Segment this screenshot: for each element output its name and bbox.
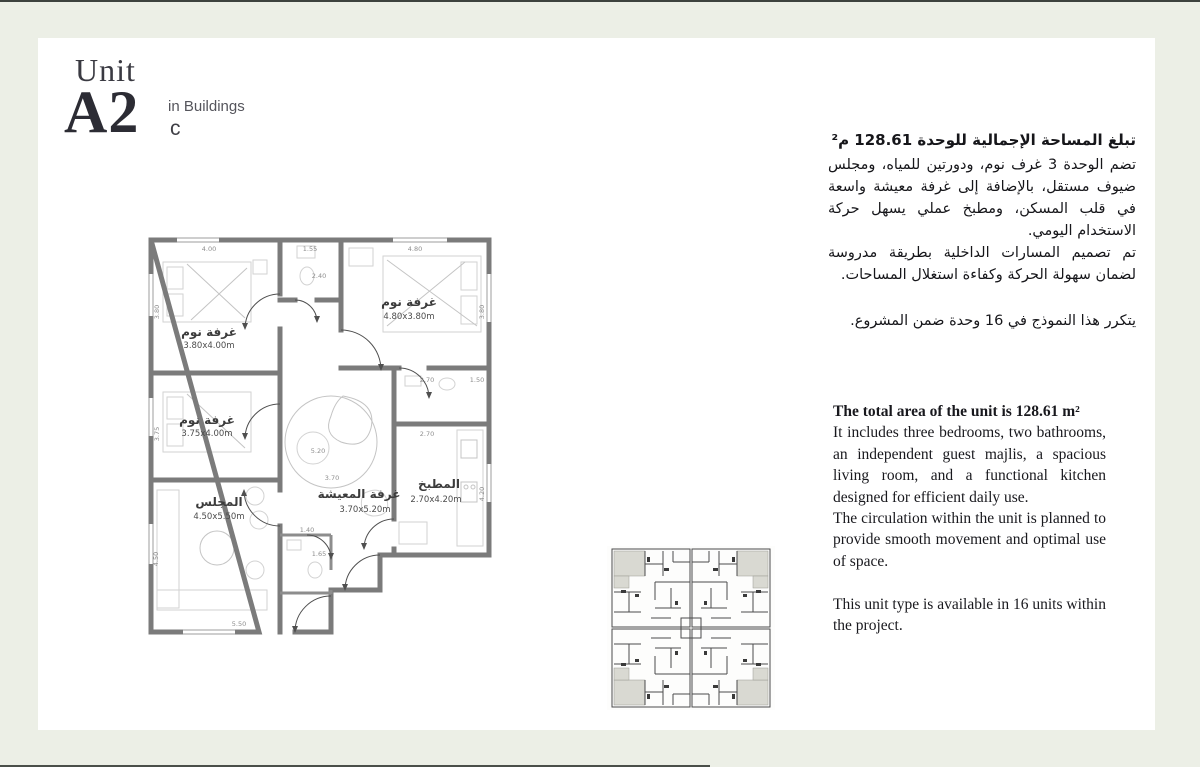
arabic-heading: تبلغ المساحة الإجمالية للوحدة 128.61 م² xyxy=(828,129,1136,152)
svg-text:3.80: 3.80 xyxy=(478,305,486,319)
room-label-bedroom3: غرفة نوم xyxy=(179,413,235,428)
english-paragraph-3: This unit type is available in 16 units … xyxy=(833,594,1106,637)
svg-text:2.70: 2.70 xyxy=(420,376,434,384)
svg-text:4.50x5.50m: 4.50x5.50m xyxy=(193,512,244,522)
svg-text:3.75x4.00m: 3.75x4.00m xyxy=(181,429,232,439)
svg-text:1.40: 1.40 xyxy=(300,526,314,534)
svg-text:2.40: 2.40 xyxy=(312,272,326,280)
in-buildings-label: in Buildings xyxy=(168,98,245,115)
room-label-living: غرفة المعيشة xyxy=(318,487,401,501)
svg-text:3.80: 3.80 xyxy=(153,305,161,319)
building-letter: c xyxy=(170,117,181,141)
svg-text:5.50: 5.50 xyxy=(232,620,246,628)
arabic-paragraph-3: يتكرر هذا النموذج في 16 وحدة ضمن المشروع… xyxy=(828,310,1136,332)
svg-text:2.70: 2.70 xyxy=(420,430,434,438)
room-label-majlis: المجلس xyxy=(195,495,242,509)
arabic-paragraph-2: تم تصميم المسارات الداخلية بطريقة مدروسة… xyxy=(828,242,1136,286)
building-key-plan xyxy=(607,546,775,710)
room-label-kitchen: المطبخ xyxy=(418,477,460,491)
svg-text:1.55: 1.55 xyxy=(303,245,317,253)
english-description: The total area of the unit is 128.61 m² … xyxy=(833,401,1106,637)
arabic-paragraph-1: تضم الوحدة 3 غرف نوم، ودورتين للمياه، وم… xyxy=(828,154,1136,242)
english-heading: The total area of the unit is 128.61 m² xyxy=(833,401,1106,422)
english-paragraph-1: It includes three bedrooms, two bathroom… xyxy=(833,422,1106,508)
svg-text:5.20: 5.20 xyxy=(311,447,325,455)
floor-plan: 4.00 1.55 4.80 2.40 3.80 3.80 3.75 2.70 … xyxy=(147,234,493,638)
key-plan-drawing xyxy=(607,546,775,710)
svg-text:4.00: 4.00 xyxy=(202,245,216,253)
arabic-description: تبلغ المساحة الإجمالية للوحدة 128.61 م² … xyxy=(828,129,1136,332)
room-label-bedroom2: غرفة نوم xyxy=(381,295,437,310)
top-border-line xyxy=(0,0,1200,2)
svg-text:3.70x5.20m: 3.70x5.20m xyxy=(339,505,390,515)
svg-text:3.80x4.00m: 3.80x4.00m xyxy=(183,341,234,351)
english-paragraph-2: The circulation within the unit is plann… xyxy=(833,508,1106,572)
floor-plan-drawing: 4.00 1.55 4.80 2.40 3.80 3.80 3.75 2.70 … xyxy=(147,234,493,638)
svg-text:4.20: 4.20 xyxy=(478,487,486,501)
unit-code: A2 xyxy=(64,78,139,147)
door-arcs xyxy=(244,294,429,632)
brochure-page: { "page": { "background": "#ecefe6", "pa… xyxy=(0,0,1200,767)
svg-text:1.65: 1.65 xyxy=(312,550,326,558)
svg-text:4.80x3.80m: 4.80x3.80m xyxy=(383,312,434,322)
svg-text:3.75: 3.75 xyxy=(153,427,161,441)
svg-text:1.50: 1.50 xyxy=(470,376,484,384)
room-label-bedroom1: غرفة نوم xyxy=(181,325,237,340)
svg-text:2.70x4.20m: 2.70x4.20m xyxy=(410,495,461,505)
svg-text:3.70: 3.70 xyxy=(325,474,339,482)
svg-text:4.50: 4.50 xyxy=(152,552,160,566)
svg-text:4.80: 4.80 xyxy=(408,245,422,253)
